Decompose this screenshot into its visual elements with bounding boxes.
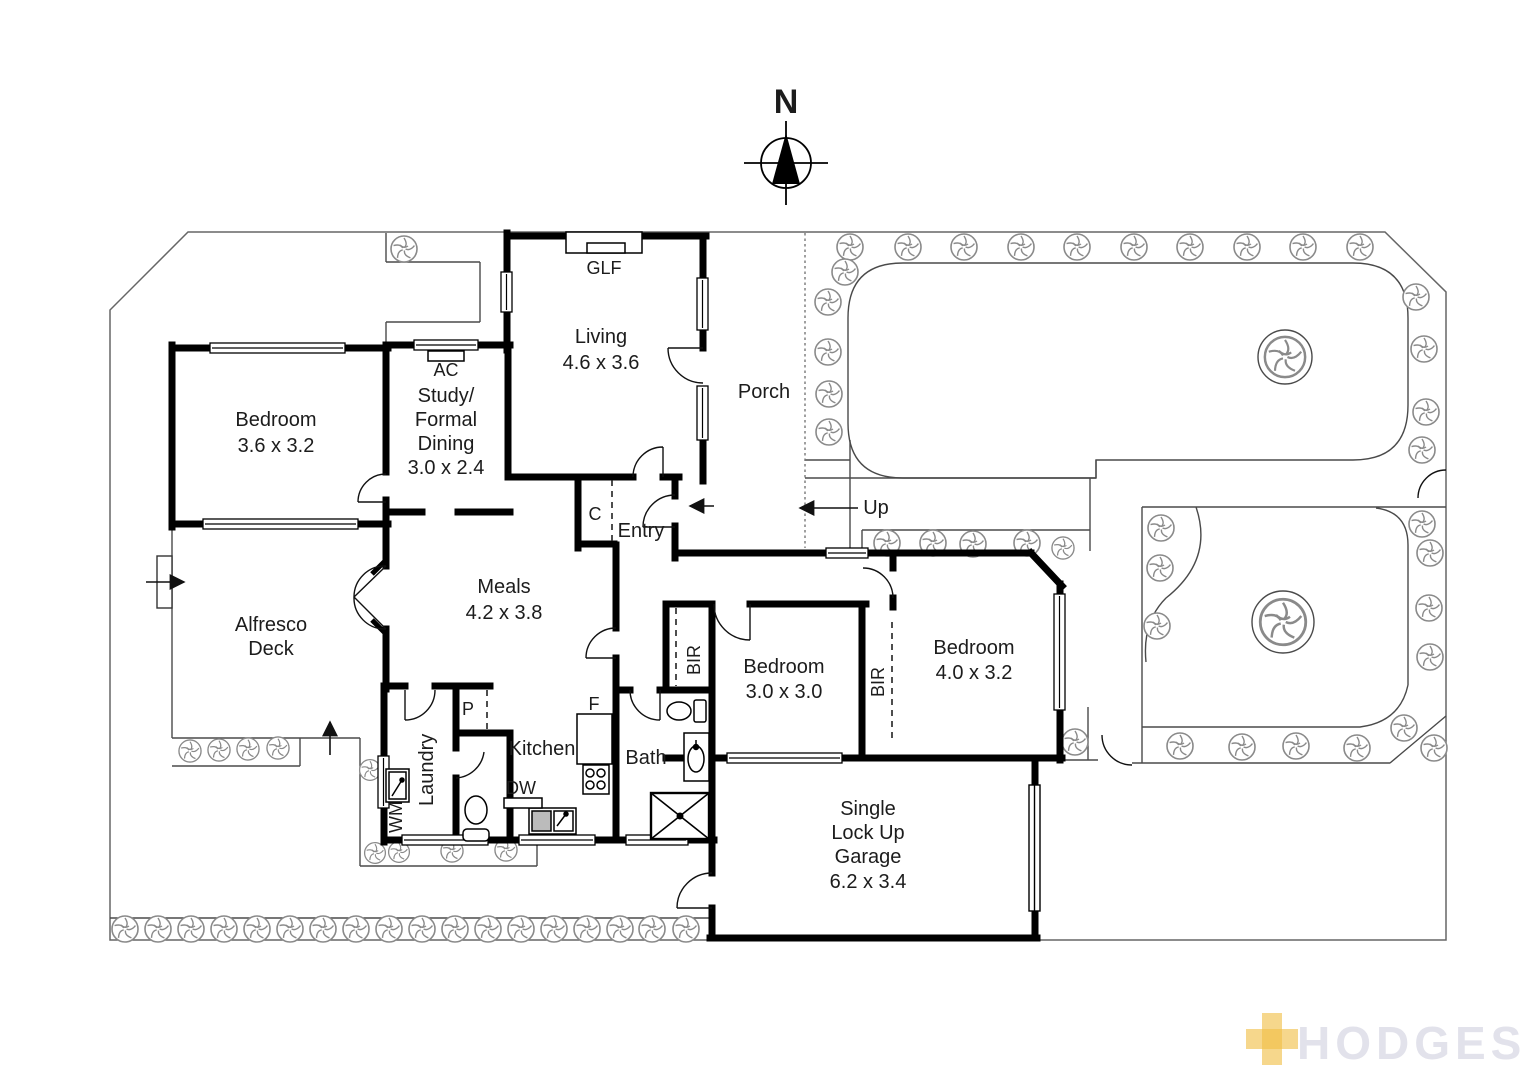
shrub-icon — [1144, 613, 1170, 639]
shrub-icon — [816, 419, 842, 445]
shrub-icon — [816, 381, 842, 407]
garage-roller-door-icon — [1029, 785, 1040, 911]
shrub-icon — [1391, 715, 1417, 741]
room-dims-bedroom-nw: 3.6 x 3.2 — [238, 435, 315, 457]
ac-label: AC — [433, 360, 458, 380]
laundry-trough-icon — [386, 769, 409, 802]
shrub-icon — [1409, 437, 1435, 463]
brand-watermark-text: HODGES — [1297, 1017, 1526, 1069]
room-label-bath: Bath — [625, 747, 666, 769]
room-label-study-1: Study/ — [418, 385, 475, 407]
window-icon — [727, 753, 842, 763]
shrub-icon — [211, 916, 237, 942]
shrub-icon — [1283, 733, 1309, 759]
window-icon — [826, 548, 868, 558]
room-label-garage-3: Garage — [835, 846, 902, 868]
shrub-icon — [1413, 399, 1439, 425]
fridge-space-icon — [577, 714, 612, 764]
shrub-icon — [1417, 540, 1443, 566]
shrub-icon — [508, 916, 534, 942]
shrub-icon — [178, 916, 204, 942]
room-label-porch: Porch — [738, 381, 790, 403]
fireplace-icon — [566, 232, 642, 253]
window-icon — [697, 386, 708, 440]
room-label-garage-1: Single — [840, 798, 896, 820]
shrub-icon — [1147, 555, 1173, 581]
dishwasher-icon — [504, 798, 542, 808]
shrub-icon — [112, 916, 138, 942]
shrub-icon — [673, 916, 699, 942]
floor-plan-page: N Bedroom 3.6 x 3.2 Study/ Formal Dining… — [0, 0, 1527, 1080]
shrub-icon — [541, 916, 567, 942]
brand-plus-icon — [1246, 1013, 1298, 1065]
room-label-garage-2: Lock Up — [831, 822, 904, 844]
pantry-label: P — [462, 699, 474, 719]
shrub-icon — [1347, 234, 1373, 260]
shrub-icon — [951, 234, 977, 260]
shrub-icon — [1008, 234, 1034, 260]
shrub-icon — [815, 289, 841, 315]
shrub-icon — [1121, 234, 1147, 260]
stairs-up-label: Up — [863, 497, 889, 519]
shrub-icon — [277, 916, 303, 942]
shrub-icon — [1403, 284, 1429, 310]
shrub-icon — [1062, 729, 1088, 755]
shrub-icon — [1290, 234, 1316, 260]
shrub-icon — [1177, 234, 1203, 260]
shrub-icon — [895, 234, 921, 260]
closet-dashed-lines — [487, 480, 892, 740]
shrub-icon — [1052, 537, 1074, 559]
room-dims-living: 4.6 x 3.6 — [563, 352, 640, 374]
shrub-icon — [442, 916, 468, 942]
garden-lines — [110, 233, 1446, 918]
shrub-icon — [1148, 515, 1174, 541]
toilet-icon — [667, 700, 706, 722]
window-icon — [414, 340, 478, 350]
room-label-meals: Meals — [477, 576, 530, 598]
shrub-icon — [409, 916, 435, 942]
window-icon — [203, 519, 358, 529]
washing-machine-label: WM — [386, 801, 406, 833]
shrub-icon — [475, 916, 501, 942]
shrub-icon — [832, 259, 858, 285]
shrub-icon — [267, 737, 289, 759]
room-label-bedroom-nw: Bedroom — [235, 409, 316, 431]
shrub-icon — [179, 740, 201, 762]
shrub-icon — [1064, 234, 1090, 260]
room-label-alfresco-2: Deck — [248, 638, 295, 660]
shrub-icon — [1416, 595, 1442, 621]
shrub-icon — [1417, 644, 1443, 670]
shrub-icon — [208, 739, 230, 761]
fireplace-label: GLF — [586, 258, 621, 278]
room-label-bedroom-mid: Bedroom — [743, 656, 824, 678]
wc-toilet-icon — [463, 796, 489, 841]
tree-icon — [1252, 330, 1314, 653]
room-label-kitchen: Kitchen — [509, 738, 576, 760]
shrub-icon — [365, 843, 386, 864]
fridge-label: F — [589, 694, 600, 714]
vegetation-layer — [112, 234, 1447, 942]
shrub-icon — [1234, 234, 1260, 260]
shrub-icon — [815, 339, 841, 365]
kitchen-sink-icon — [529, 808, 576, 834]
property-boundary — [110, 232, 1446, 940]
shrub-icon — [391, 236, 417, 262]
shrub-icon — [145, 916, 171, 942]
room-dims-bedroom-mid: 3.0 x 3.0 — [746, 681, 823, 703]
shrub-icon — [343, 916, 369, 942]
shrub-icon — [1167, 733, 1193, 759]
room-dims-garage: 6.2 x 3.4 — [830, 871, 907, 893]
dishwasher-label: DW — [506, 778, 536, 798]
bir-label-1: BIR — [684, 645, 704, 675]
shrub-icon — [244, 916, 270, 942]
room-label-study-3: Dining — [418, 433, 475, 455]
floor-plan: N Bedroom 3.6 x 3.2 Study/ Formal Dining… — [0, 0, 1527, 1080]
shrub-icon — [310, 916, 336, 942]
window-icon — [1054, 594, 1065, 710]
shrub-icon — [639, 916, 665, 942]
shrub-icon — [1411, 336, 1437, 362]
shrub-icon — [360, 760, 381, 781]
shrub-icon — [237, 738, 259, 760]
shrub-icon — [1421, 735, 1447, 761]
window-icon — [210, 343, 345, 353]
room-dims-study: 3.0 x 2.4 — [408, 457, 485, 479]
shrub-icon — [837, 234, 863, 260]
room-dims-bedroom-east: 4.0 x 3.2 — [936, 662, 1013, 684]
shrub-icon — [1229, 734, 1255, 760]
window-icon — [697, 278, 708, 330]
shrub-icon — [376, 916, 402, 942]
room-label-study-2: Formal — [415, 409, 477, 431]
window-icon — [501, 272, 512, 312]
closet-label: C — [589, 504, 602, 524]
compass-north-label: N — [774, 83, 799, 121]
shrub-icon — [1409, 511, 1435, 537]
window-icon — [519, 835, 595, 845]
shrub-icon — [1344, 735, 1370, 761]
room-labels: Bedroom 3.6 x 3.2 Study/ Formal Dining 3… — [235, 326, 1015, 893]
room-label-entry: Entry — [618, 520, 665, 542]
room-label-bedroom-east: Bedroom — [933, 637, 1014, 659]
room-dims-meals: 4.2 x 3.8 — [466, 602, 543, 624]
shrub-icon — [607, 916, 633, 942]
stove-icon — [583, 765, 609, 794]
room-label-alfresco-1: Alfresco — [235, 614, 307, 636]
shower-icon — [651, 793, 709, 839]
compass-icon: N — [744, 83, 828, 205]
shrub-icon — [574, 916, 600, 942]
basin-icon — [684, 733, 709, 781]
room-label-laundry: Laundry — [416, 734, 438, 806]
room-label-living: Living — [575, 326, 627, 348]
brand-watermark: HODGES — [1246, 1013, 1526, 1069]
bir-label-2: BIR — [868, 667, 888, 697]
